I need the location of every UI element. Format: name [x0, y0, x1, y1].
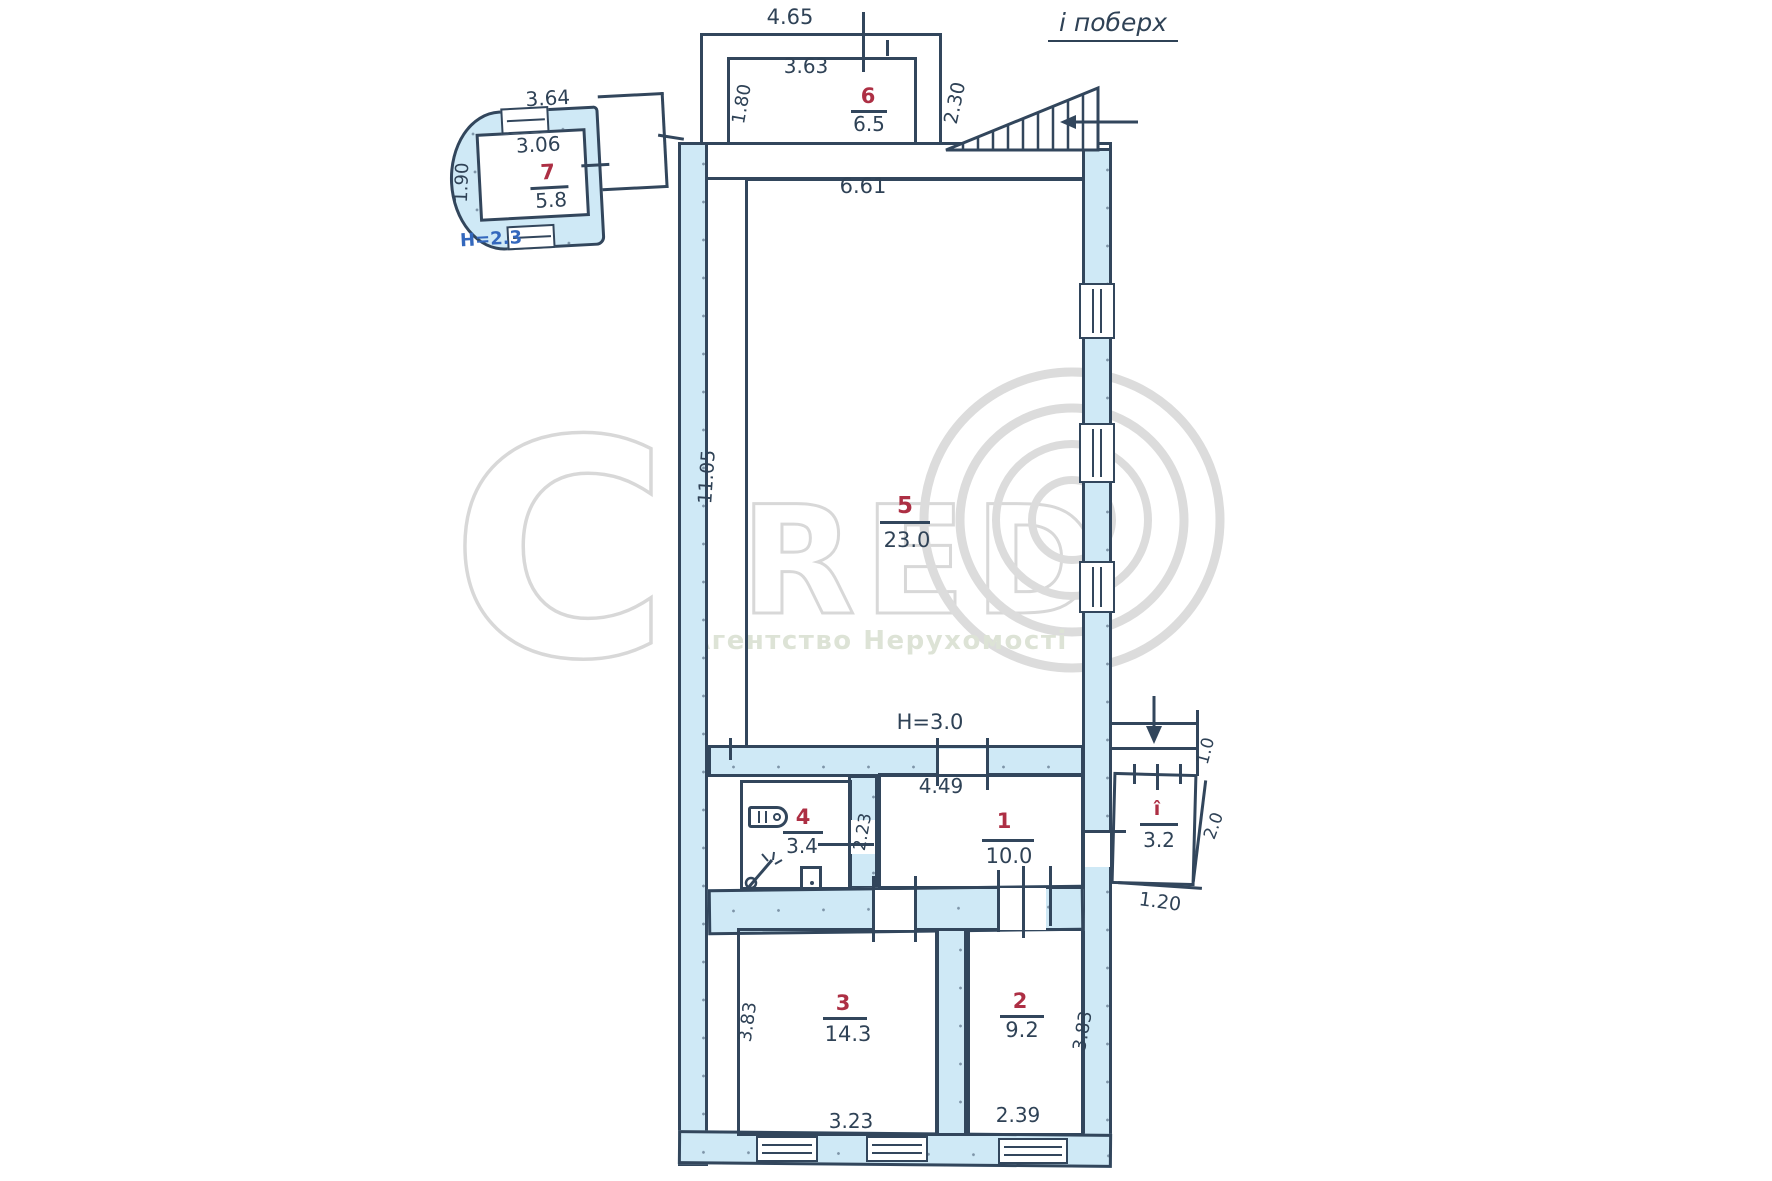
stairs-icon	[938, 78, 1148, 156]
floor-plan: і поберх 3.64 3.06 7 5.8 1.90 H=2.3	[0, 0, 1772, 1181]
room6-dim-inner: 3.63	[784, 54, 829, 78]
room6-door-tick-2	[886, 40, 889, 56]
room5-number: 5	[897, 493, 913, 519]
window-symbol	[1079, 561, 1115, 613]
room1-number: 1	[997, 809, 1012, 833]
room1-area: 10.0	[986, 844, 1033, 868]
annex-area: 5.8	[535, 187, 568, 213]
annex-height-label: H=2.3	[460, 227, 523, 251]
fraction-line	[880, 521, 930, 524]
window-symbol	[866, 1136, 928, 1162]
entry-arrow-icon	[1142, 694, 1166, 746]
floor-plan-scan: { "title": "і поберх", "watermark": {"c"…	[0, 0, 1772, 1181]
porch-number: î	[1154, 798, 1161, 820]
room5-area: 23.0	[884, 528, 931, 552]
room6-dim-top: 4.65	[767, 5, 814, 29]
window-symbol	[1079, 423, 1115, 483]
main-left-wall	[678, 142, 708, 1166]
room3-area: 14.3	[825, 1022, 872, 1046]
room5-dim-top: 6.61	[840, 174, 887, 198]
room3-number: 3	[836, 991, 851, 1015]
room4-area: 3.4	[786, 834, 818, 858]
room5-outline	[745, 178, 1085, 748]
fraction-line	[1140, 823, 1178, 826]
annex-side-wall	[598, 92, 669, 191]
door-opening-room5-room1	[938, 749, 988, 774]
annex-room-number: 7	[540, 160, 556, 185]
annex-dim-inner: 3.06	[515, 131, 561, 157]
annex-dim-left: 1.90	[451, 162, 473, 203]
window-symbol	[756, 1136, 818, 1162]
room6-area: 6.5	[853, 112, 885, 136]
page-title: і поберх	[1048, 8, 1178, 42]
door-opening-room3	[875, 890, 914, 930]
room3-dim-bottom: 3.23	[829, 1109, 874, 1133]
fraction-line	[823, 1017, 867, 1020]
toilet-icon	[800, 866, 822, 890]
door-opening-porch	[1085, 833, 1110, 867]
room2-dim-bottom: 2.39	[996, 1103, 1041, 1127]
porch-step	[1112, 747, 1198, 750]
annex-building: 3.64 3.06 7 5.8 1.90 H=2.3	[439, 81, 738, 276]
porch-dim-bottom: 1.20	[1138, 888, 1183, 916]
window-symbol	[998, 1138, 1068, 1164]
room2-number: 2	[1013, 989, 1028, 1013]
fraction-line	[982, 839, 1034, 842]
porch-dim-side: 2.0	[1200, 810, 1228, 842]
room6-number: 6	[861, 84, 876, 108]
faucet-icon	[738, 852, 782, 896]
wall-tick	[729, 738, 732, 760]
annex-dim-top: 3.64	[525, 85, 571, 111]
window-symbol	[1079, 283, 1115, 339]
room1-outline	[878, 773, 1084, 889]
boiler-icon	[748, 806, 788, 828]
room5-dim-left: 11.05	[694, 449, 720, 505]
room5-height-label: H=3.0	[897, 710, 964, 734]
porch-area: 3.2	[1143, 828, 1175, 852]
wall-room3-room2	[935, 928, 967, 1136]
room2-area: 9.2	[1005, 1018, 1038, 1042]
room6-door-tick	[862, 12, 865, 72]
room4-number: 4	[796, 805, 811, 829]
room1-dim-top: 4.49	[919, 774, 964, 798]
